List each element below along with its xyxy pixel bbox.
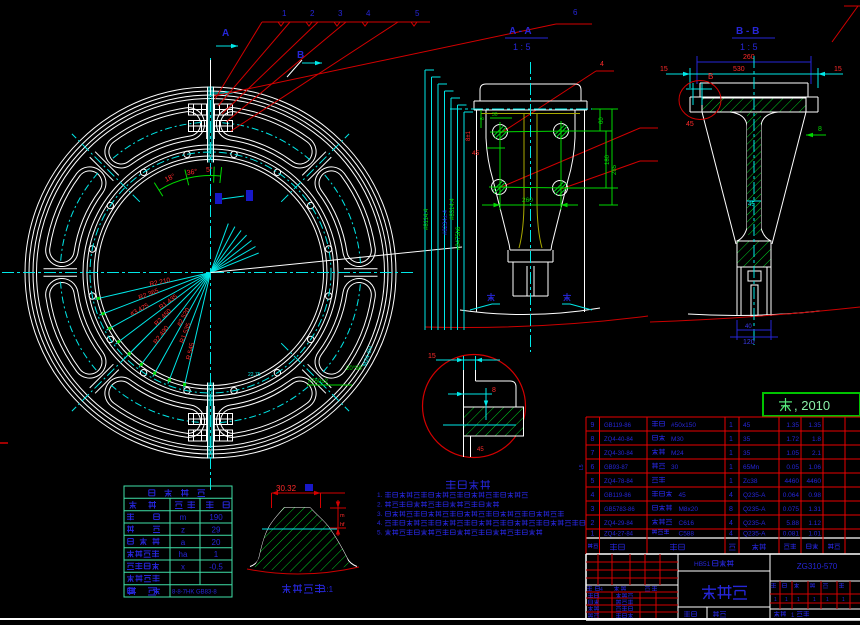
svg-text:5: 5	[415, 9, 420, 18]
svg-text:C616: C616	[679, 520, 695, 527]
svg-text:1.35: 1.35	[808, 422, 821, 429]
svg-text:5.: 5.	[377, 530, 383, 537]
svg-text:-0.5: -0.5	[209, 563, 223, 572]
svg-text:M24: M24	[671, 450, 684, 457]
svg-text:1 : 5: 1 : 5	[513, 42, 531, 52]
svg-text:1: 1	[591, 531, 595, 538]
svg-text:0.064: 0.064	[783, 492, 800, 499]
svg-text:35: 35	[743, 450, 751, 457]
svg-text:ZQ4-29-84: ZQ4-29-84	[604, 521, 634, 527]
svg-text:35: 35	[743, 436, 751, 443]
svg-text:2.1: 2.1	[812, 450, 821, 457]
svg-text:4: 4	[729, 492, 733, 499]
svg-text:A - A: A - A	[509, 26, 532, 37]
svg-text:30: 30	[492, 112, 498, 118]
svg-text:6: 6	[591, 464, 595, 471]
svg-text:65Mn: 65Mn	[743, 464, 760, 471]
svg-text:4: 4	[600, 61, 604, 68]
svg-text:36°: 36°	[186, 168, 198, 177]
svg-text:190: 190	[209, 513, 223, 522]
svg-text:20°56': 20°56'	[346, 366, 363, 372]
svg-text:30: 30	[671, 464, 679, 471]
svg-text:hf: hf	[340, 522, 345, 528]
svg-text:22.75: 22.75	[248, 372, 261, 378]
svg-text:ZQ4-40-84: ZQ4-40-84	[604, 437, 634, 443]
svg-text:0.081: 0.081	[783, 531, 800, 538]
svg-text:4: 4	[729, 531, 733, 538]
svg-text:4: 4	[366, 9, 371, 18]
svg-text:1: 1	[729, 464, 733, 471]
svg-text:1.01: 1.01	[808, 531, 821, 538]
svg-text:C588: C588	[679, 531, 695, 538]
svg-text:260: 260	[522, 197, 533, 204]
svg-text:L5: L5	[579, 464, 585, 470]
svg-text:4: 4	[729, 520, 733, 527]
svg-text:30.32: 30.32	[276, 484, 297, 493]
svg-text:3: 3	[338, 9, 343, 18]
svg-text:Q235-A: Q235-A	[743, 492, 766, 499]
svg-text:1.31: 1.31	[808, 506, 821, 513]
svg-text:Q235-A: Q235-A	[743, 520, 766, 527]
svg-text:GB93-87: GB93-87	[604, 465, 629, 471]
svg-text:45: 45	[472, 150, 480, 157]
svg-text:#50x150: #50x150	[671, 422, 696, 429]
svg-text:0.05: 0.05	[786, 464, 799, 471]
svg-text:1: 1	[729, 450, 733, 457]
svg-text:1.: 1.	[377, 492, 383, 499]
svg-text:0.075: 0.075	[783, 506, 800, 513]
svg-text:ha: ha	[179, 550, 188, 559]
svg-text:1: 1	[842, 597, 845, 603]
svg-text:8-8-7HK GB83-8: 8-8-7HK GB83-8	[172, 590, 217, 596]
svg-text:#750±2: #750±2	[308, 379, 329, 385]
svg-text:1.35: 1.35	[786, 422, 799, 429]
svg-text:45: 45	[743, 422, 751, 429]
svg-text:60: 60	[599, 117, 605, 124]
svg-text:45: 45	[477, 447, 484, 453]
svg-text:40: 40	[745, 324, 752, 330]
svg-text:15: 15	[660, 66, 668, 73]
svg-text:4: 4	[591, 492, 595, 499]
svg-text:5.88: 5.88	[786, 520, 799, 527]
svg-text:45: 45	[748, 202, 755, 208]
svg-text:8: 8	[818, 126, 822, 133]
svg-text:1: 1	[729, 478, 733, 485]
svg-text:15: 15	[834, 66, 842, 73]
svg-text:M8x20: M8x20	[679, 506, 699, 513]
svg-text:20: 20	[212, 538, 221, 547]
svg-text:GB119-86: GB119-86	[604, 493, 632, 499]
svg-text:3: 3	[591, 506, 595, 513]
svg-text:6: 6	[573, 8, 578, 17]
svg-text:1.72: 1.72	[786, 436, 799, 443]
svg-text:2.: 2.	[377, 502, 383, 509]
svg-text:1: 1	[785, 597, 788, 603]
svg-text:285: 285	[612, 164, 618, 175]
svg-text:0.98: 0.98	[808, 492, 821, 499]
svg-text:530: 530	[733, 66, 745, 73]
svg-text:1.8: 1.8	[812, 436, 821, 443]
svg-text:1.12: 1.12	[808, 520, 821, 527]
svg-text:1:1: 1:1	[322, 585, 334, 594]
svg-text:1: 1	[797, 597, 800, 603]
svg-text:ZG310-570: ZG310-570	[797, 562, 838, 571]
svg-text:Zc38: Zc38	[743, 478, 758, 485]
svg-text:2: 2	[310, 9, 315, 18]
svg-text:1: 1	[729, 422, 733, 429]
svg-text:M30: M30	[671, 436, 684, 443]
svg-text:1: 1	[813, 597, 816, 603]
svg-text:1: 1	[729, 436, 733, 443]
svg-text:x: x	[181, 563, 185, 572]
svg-text:5°: 5°	[206, 166, 213, 174]
svg-text:#8114.4: #8114.4	[424, 208, 430, 230]
svg-text:1: 1	[826, 597, 829, 603]
svg-text:a: a	[181, 538, 186, 547]
svg-text:1 : 5: 1 : 5	[740, 42, 758, 52]
svg-text:8±1: 8±1	[466, 130, 472, 141]
svg-text:B - B: B - B	[736, 26, 759, 37]
svg-text:ZQ4-27-84: ZQ4-27-84	[604, 532, 634, 538]
svg-text:5: 5	[591, 478, 595, 485]
svg-text:HB51: HB51	[694, 561, 711, 568]
svg-text:GB5783-86: GB5783-86	[604, 507, 635, 513]
svg-text:260: 260	[743, 54, 755, 61]
svg-text:29: 29	[212, 526, 221, 535]
svg-text:z: z	[181, 526, 185, 535]
svg-text:Q235-A: Q235-A	[743, 506, 766, 513]
svg-text:45: 45	[679, 492, 687, 499]
svg-text:Q235-A: Q235-A	[743, 531, 766, 538]
svg-text:8: 8	[729, 506, 733, 513]
svg-text:B: B	[708, 72, 713, 81]
svg-text:180: 180	[605, 154, 611, 165]
svg-text:, 2010: , 2010	[794, 398, 830, 413]
svg-text:8: 8	[492, 387, 496, 394]
svg-text:1: 1	[214, 550, 219, 559]
svg-text:4: 4	[600, 587, 603, 593]
svg-text:GB119-86: GB119-86	[604, 423, 632, 429]
svg-text:A: A	[222, 28, 229, 39]
svg-text:m: m	[180, 513, 187, 522]
svg-text:#8234±.4: #8234±.4	[443, 209, 449, 235]
svg-text:15: 15	[428, 353, 436, 360]
svg-text:45: 45	[686, 121, 694, 128]
svg-text:4460: 4460	[785, 478, 800, 485]
svg-text:m: m	[340, 513, 345, 519]
svg-text:ZQ4-30-84: ZQ4-30-84	[604, 451, 634, 457]
svg-text:#8314.4: #8314.4	[450, 198, 456, 220]
svg-text:4460: 4460	[807, 478, 822, 485]
svg-text:1: 1	[774, 597, 777, 603]
svg-text:1.06: 1.06	[808, 464, 821, 471]
svg-text:1: 1	[282, 9, 287, 18]
svg-text:4.: 4.	[377, 520, 383, 527]
svg-text:2: 2	[591, 520, 595, 527]
svg-text:3.: 3.	[377, 511, 383, 518]
svg-text:8: 8	[480, 117, 486, 120]
svg-text:7: 7	[591, 450, 595, 457]
svg-text:#8475h6: #8475h6	[456, 226, 462, 250]
svg-text:ZQ4-78-84: ZQ4-78-84	[604, 479, 634, 485]
svg-text:9: 9	[591, 422, 595, 429]
svg-text:1.05: 1.05	[786, 450, 799, 457]
svg-text:120: 120	[743, 339, 755, 346]
svg-text:8: 8	[591, 436, 595, 443]
